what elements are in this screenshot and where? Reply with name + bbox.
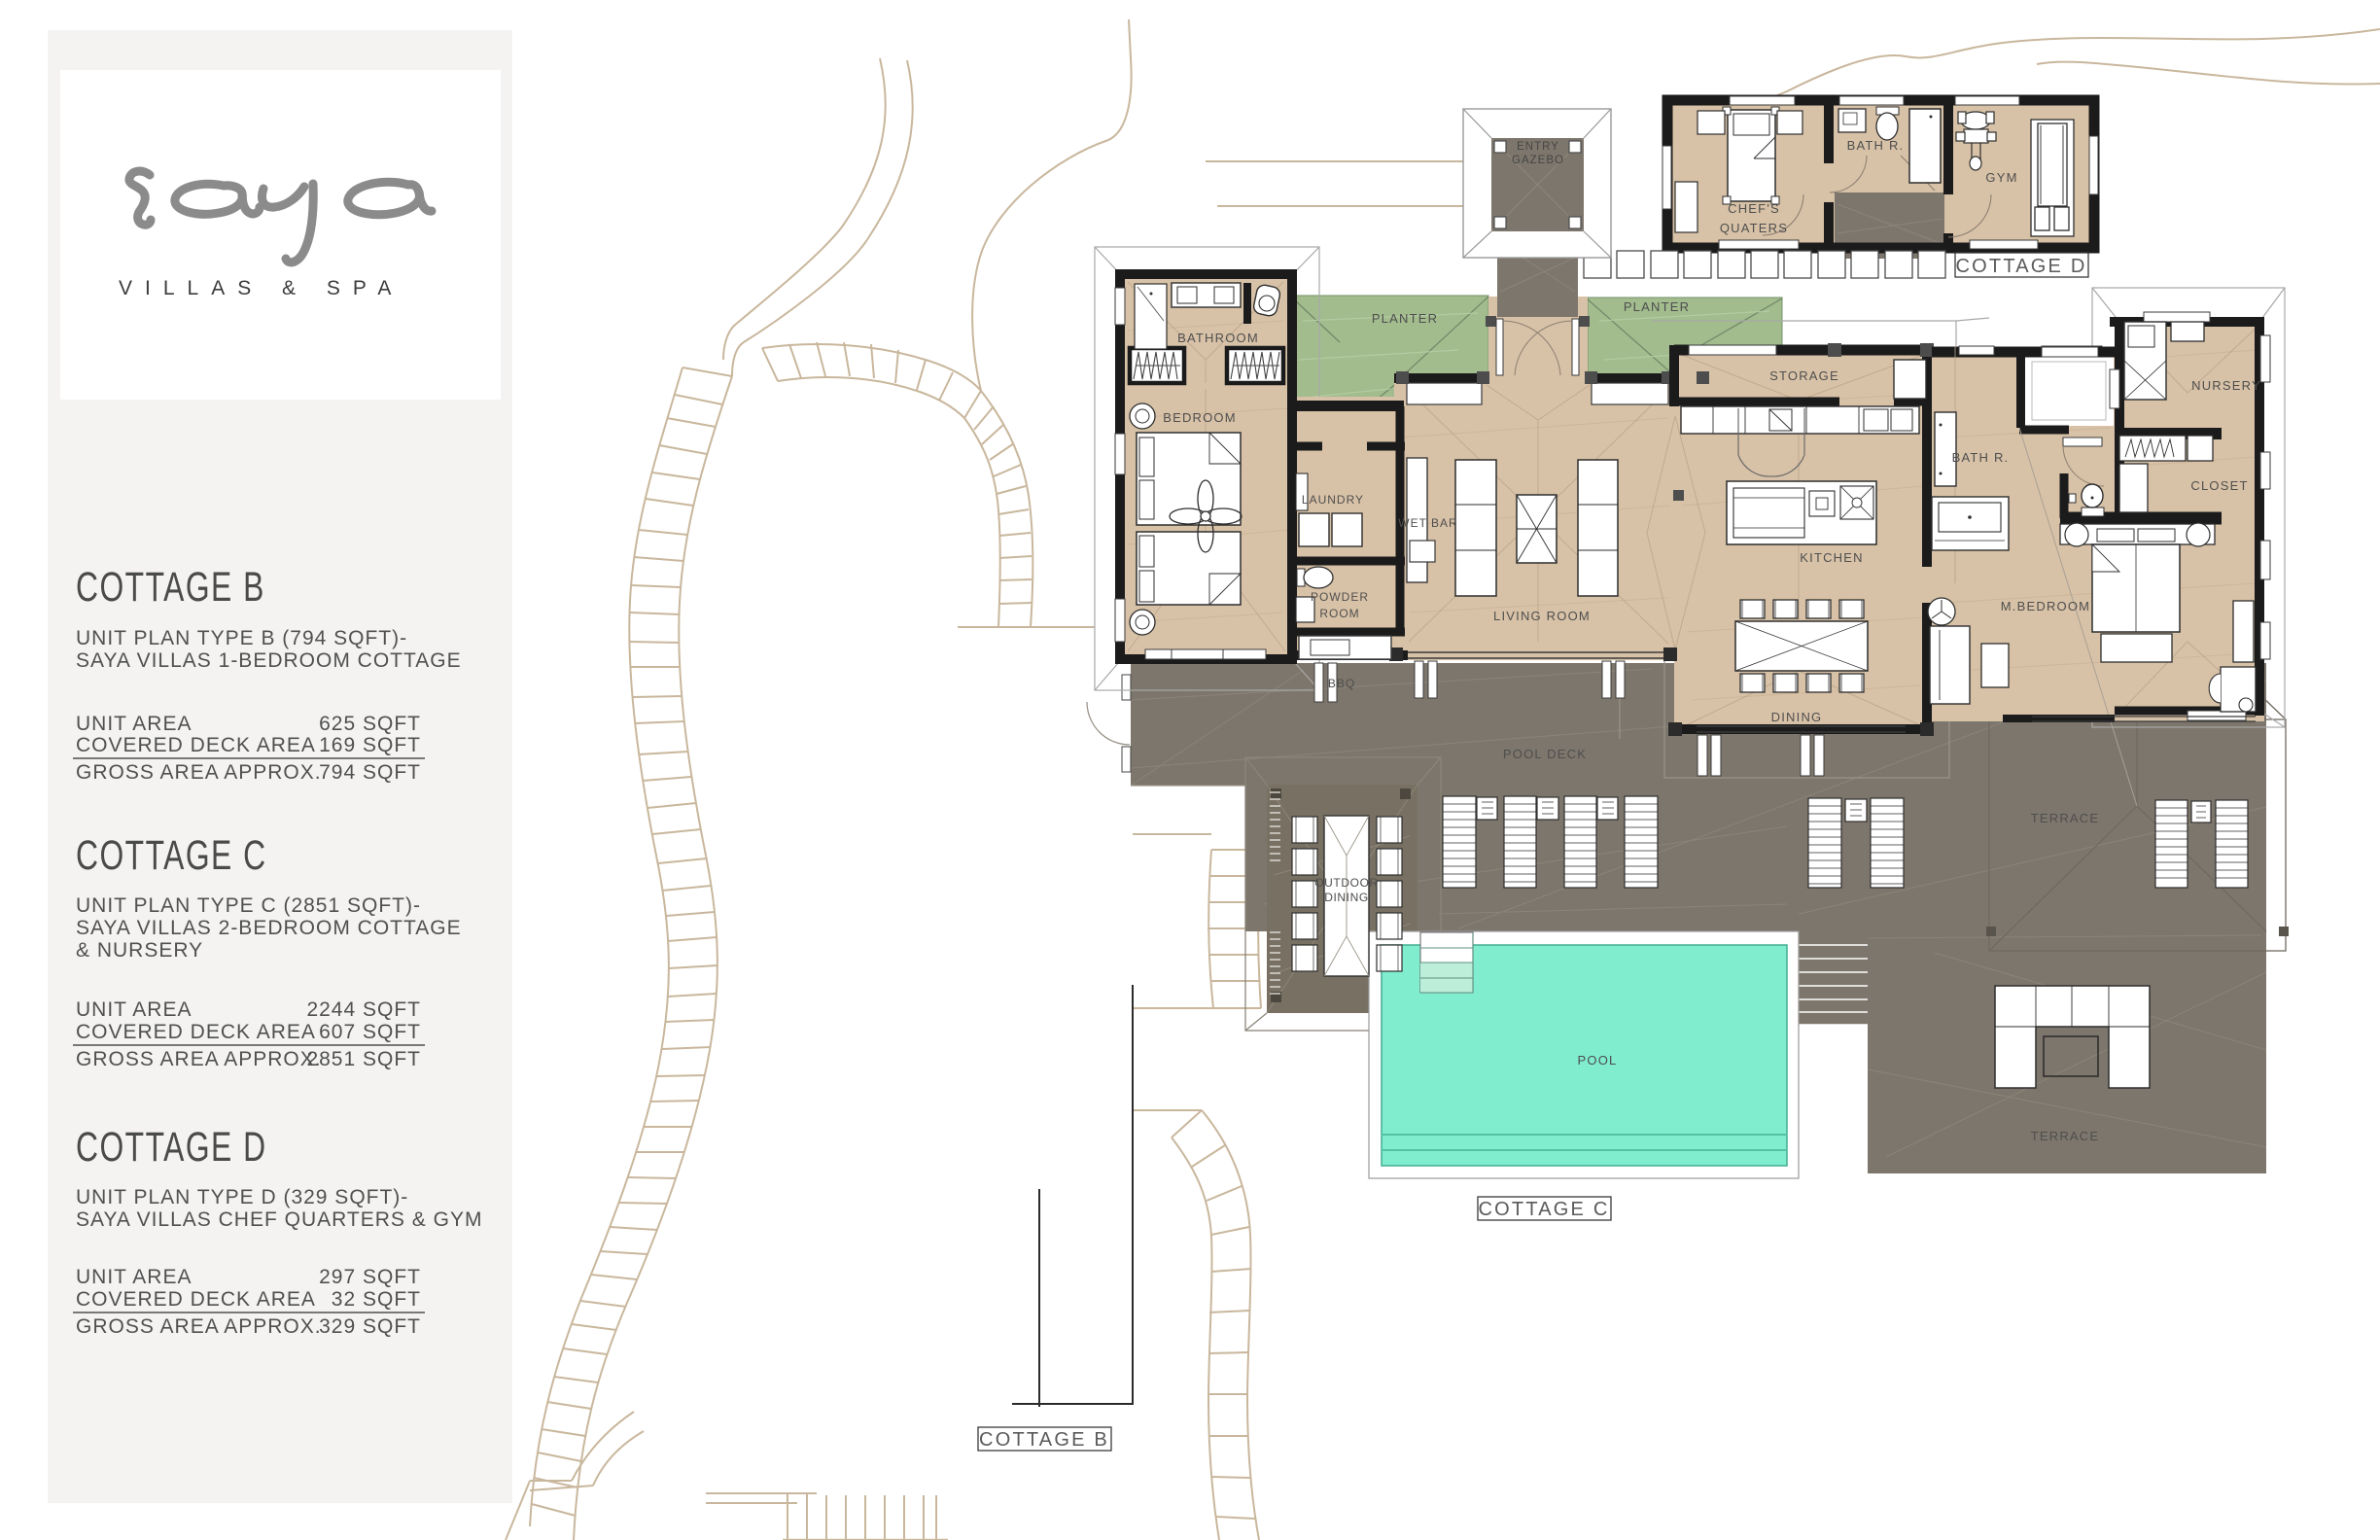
svg-text:LIVING ROOM: LIVING ROOM	[1493, 609, 1591, 623]
svg-text:32 SQFT: 32 SQFT	[332, 1288, 421, 1311]
svg-text:BATH R.: BATH R.	[1847, 138, 1905, 153]
svg-text:COVERED DECK AREA: COVERED DECK AREA	[76, 734, 316, 756]
svg-text:329 SQFT: 329 SQFT	[319, 1315, 421, 1338]
svg-text:NURSERY: NURSERY	[2191, 378, 2261, 393]
svg-text:VILLAS & SPA: VILLAS & SPA	[119, 277, 403, 299]
svg-text:GAZEBO: GAZEBO	[1512, 155, 1564, 166]
svg-text:QUATERS: QUATERS	[1720, 221, 1788, 235]
svg-text:SAYA VILLAS CHEF QUARTERS & GY: SAYA VILLAS CHEF QUARTERS & GYM	[76, 1208, 482, 1231]
svg-text:DINING: DINING	[1771, 710, 1823, 724]
svg-text:STORAGE: STORAGE	[1769, 368, 1839, 383]
svg-text:SAYA VILLAS 2-BEDROOM COTTAGE: SAYA VILLAS 2-BEDROOM COTTAGE	[76, 917, 462, 939]
svg-text:COTTAGE C: COTTAGE C	[76, 832, 267, 879]
svg-text:BBQ: BBQ	[1328, 677, 1355, 690]
svg-text:OUTDOOR: OUTDOOR	[1314, 876, 1379, 890]
svg-text:UNIT AREA: UNIT AREA	[76, 713, 192, 735]
svg-text:607 SQFT: 607 SQFT	[319, 1021, 421, 1043]
svg-text:625 SQFT: 625 SQFT	[319, 713, 421, 735]
svg-text:COTTAGE D: COTTAGE D	[1956, 256, 2087, 277]
svg-text:COTTAGE C: COTTAGE C	[1479, 1199, 1610, 1220]
svg-text:TERRACE: TERRACE	[2031, 1129, 2100, 1143]
svg-text:UNIT AREA: UNIT AREA	[76, 998, 192, 1021]
svg-text:CLOSET: CLOSET	[2190, 478, 2248, 493]
svg-text:GROSS AREA APPROX.: GROSS AREA APPROX.	[76, 1048, 322, 1070]
svg-text:COTTAGE D: COTTAGE D	[76, 1124, 267, 1171]
svg-text:DINING: DINING	[1324, 891, 1369, 904]
svg-text:KITCHEN: KITCHEN	[1800, 550, 1863, 565]
svg-text:& NURSERY: & NURSERY	[76, 939, 203, 962]
svg-text:2851 SQFT: 2851 SQFT	[306, 1048, 421, 1070]
svg-text:297 SQFT: 297 SQFT	[319, 1266, 421, 1288]
svg-text:COTTAGE B: COTTAGE B	[76, 564, 265, 611]
svg-text:UNIT PLAN TYPE B (794 SQFT)-: UNIT PLAN TYPE B (794 SQFT)-	[76, 627, 407, 649]
svg-text:PLANTER: PLANTER	[1624, 299, 1690, 314]
svg-text:ENTRY: ENTRY	[1517, 141, 1559, 153]
svg-text:POWDER: POWDER	[1311, 590, 1369, 604]
svg-text:UNIT PLAN TYPE C (2851 SQFT)-: UNIT PLAN TYPE C (2851 SQFT)-	[76, 894, 421, 917]
svg-text:POOL: POOL	[1578, 1053, 1618, 1067]
svg-text:GYM: GYM	[1985, 170, 2017, 185]
svg-text:SAYA VILLAS 1-BEDROOM COTTAGE: SAYA VILLAS 1-BEDROOM COTTAGE	[76, 649, 462, 672]
svg-text:BATH R.: BATH R.	[1952, 450, 2010, 465]
svg-text:BEDROOM: BEDROOM	[1163, 410, 1237, 425]
svg-text:UNIT PLAN TYPE D (329 SQFT)-: UNIT PLAN TYPE D (329 SQFT)-	[76, 1186, 408, 1208]
svg-text:169 SQFT: 169 SQFT	[319, 734, 421, 756]
svg-text:COVERED DECK AREA: COVERED DECK AREA	[76, 1021, 316, 1043]
svg-text:PLANTER: PLANTER	[1372, 311, 1438, 326]
svg-text:2244 SQFT: 2244 SQFT	[306, 998, 421, 1021]
svg-text:ROOM: ROOM	[1319, 607, 1359, 620]
svg-text:LAUNDRY: LAUNDRY	[1302, 493, 1364, 507]
svg-text:UNIT AREA: UNIT AREA	[76, 1266, 192, 1288]
svg-text:GROSS AREA APPROX.: GROSS AREA APPROX.	[76, 761, 322, 784]
svg-text:CHEF'S: CHEF'S	[1728, 201, 1780, 216]
svg-text:COVERED DECK AREA: COVERED DECK AREA	[76, 1288, 316, 1311]
svg-text:TERRACE: TERRACE	[2031, 811, 2100, 825]
svg-text:GROSS AREA APPROX.: GROSS AREA APPROX.	[76, 1315, 322, 1338]
svg-text:BATHROOM: BATHROOM	[1177, 331, 1259, 345]
svg-text:WET BAR: WET BAR	[1398, 516, 1457, 530]
svg-text:COTTAGE B: COTTAGE B	[979, 1429, 1109, 1451]
svg-text:M.BEDROOM: M.BEDROOM	[2001, 599, 2090, 613]
svg-text:POOL DECK: POOL DECK	[1503, 747, 1587, 761]
svg-text:794 SQFT: 794 SQFT	[319, 761, 421, 784]
